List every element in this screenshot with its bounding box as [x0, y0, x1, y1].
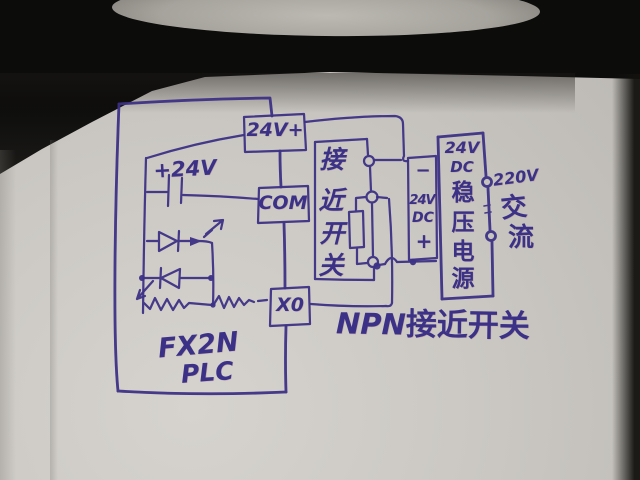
diode-node-vertical [212, 243, 213, 305]
psu-line-char-4: 源 [441, 268, 485, 291]
sensor-terminal-brown [364, 156, 374, 166]
ac-char-2: 流 [508, 225, 534, 251]
capacitor-plate [181, 178, 182, 203]
psu-line-dc: DC [441, 160, 483, 175]
sensor-label-char-2: 近 [316, 188, 346, 213]
sensor-label-char-3: 开 [317, 221, 347, 246]
plc-internal-voltage-label: +24V [147, 157, 224, 182]
top-rail-wire [147, 135, 244, 158]
psu-line-24v: 24V [441, 140, 483, 156]
sensor-caption-npn: NPN [336, 306, 406, 341]
ac-char-1: 交 [500, 194, 529, 223]
sensor-label-char-1: 接 [317, 147, 347, 172]
dc-dc-label: DC [409, 211, 437, 225]
dc-volt-label: 24V [408, 194, 436, 207]
dc-plus-label: + [410, 231, 438, 251]
psu-line-char-3: 电 [441, 241, 485, 264]
sensor-internal-resistor [349, 211, 364, 248]
sensor-caption: NPN接近开关 [336, 308, 530, 342]
sensor-signal-wire [377, 197, 387, 198]
ac-terminal-bottom [487, 232, 496, 241]
diode-right [159, 232, 177, 251]
photo-of-hand-drawn-wiring-diagram: 24V+ COM X0 +24V FX2N PLC 接 近 开 关 NPN接近开… [0, 0, 640, 480]
arrow-down-left [137, 281, 153, 299]
diode-left [161, 269, 180, 288]
sensor-caption-chinese: 接近开关 [405, 307, 530, 345]
resistor-zigzag [144, 298, 212, 310]
plc-terminal-x0-label: X0 [271, 296, 309, 315]
plc-terminal-24v-label: 24V+ [244, 121, 306, 140]
plc-type-label: PLC [180, 358, 234, 387]
dc-minus-label: − [410, 162, 436, 180]
sensor-label-char-4: 关 [316, 253, 346, 278]
plc-terminal-com-label: COM [258, 194, 308, 213]
resistor-zigzag [214, 296, 254, 308]
psu-line-char-1: 稳 [441, 182, 485, 205]
sensor-terminal-signal [367, 192, 378, 203]
psu-line-char-2: 压 [441, 212, 485, 235]
